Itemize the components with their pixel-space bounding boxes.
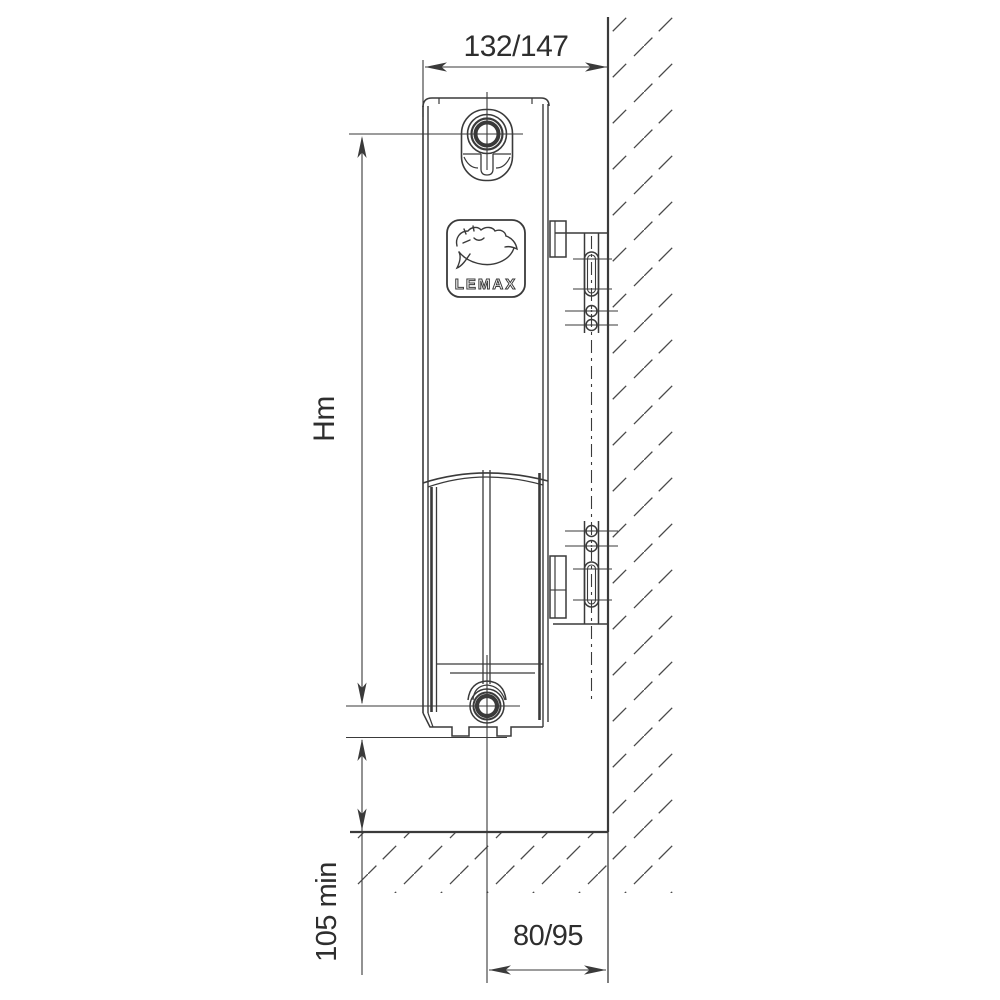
brand-logo: LEMAX <box>447 220 525 297</box>
height-dimension-label: Hm <box>308 396 341 442</box>
wall-hatching <box>352 17 680 893</box>
upper-clip <box>550 221 566 257</box>
bottom-valve <box>468 655 506 983</box>
lower-clip <box>550 556 566 618</box>
dimension-pipe-offset: 80/95 <box>489 920 606 975</box>
floor-clearance-label: 105 min <box>311 862 343 962</box>
pipe-offset-label: 80/95 <box>513 920 583 952</box>
dimension-height: Hm <box>308 136 520 706</box>
technical-drawing: LEMAX <box>0 0 1000 1000</box>
radiator-body <box>423 98 549 736</box>
dimension-depth: 132/147 <box>423 30 607 117</box>
depth-dimension-label: 132/147 <box>464 30 569 63</box>
brand-label: LEMAX <box>455 276 518 293</box>
radiator-mounting-diagram: LEMAX <box>0 0 1000 1000</box>
leaping-animal-icon <box>457 226 517 268</box>
top-valve <box>349 92 523 181</box>
